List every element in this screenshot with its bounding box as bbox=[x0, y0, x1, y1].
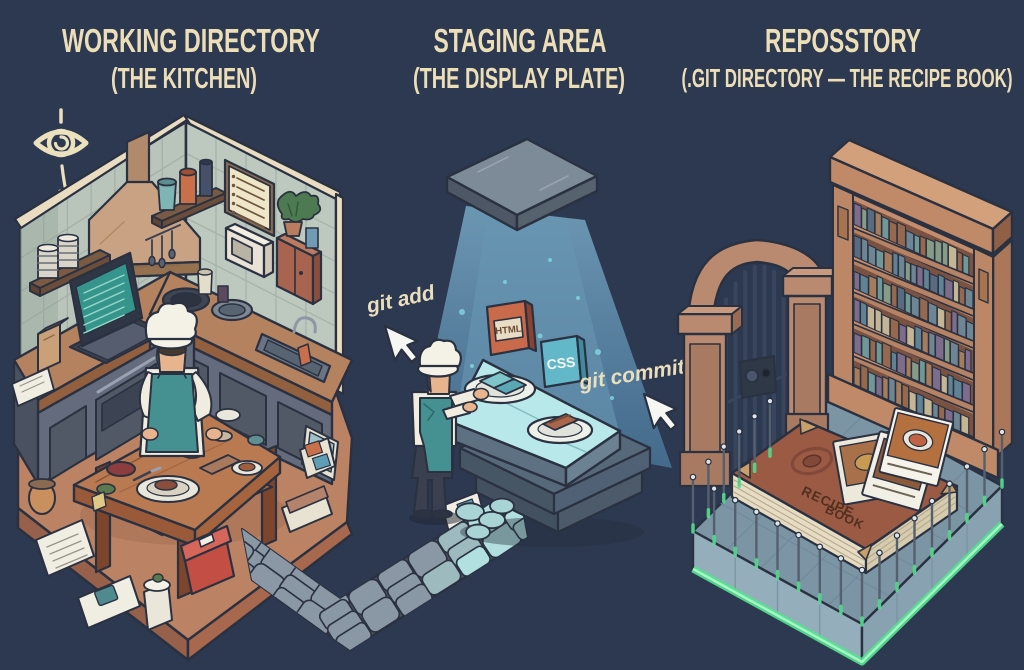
svg-text:REPOSSTORY: REPOSSTORY bbox=[765, 22, 921, 59]
svg-text:(THE DISPLAY PLATE): (THE DISPLAY PLATE) bbox=[413, 63, 625, 95]
svg-text:(THE KITCHEN): (THE KITCHEN) bbox=[111, 63, 257, 95]
svg-text:STAGING AREA: STAGING AREA bbox=[434, 22, 607, 59]
svg-text:(.GIT DIRECTORY — THE RECIPE B: (.GIT DIRECTORY — THE RECIPE BOOK) bbox=[682, 63, 1013, 93]
svg-text:CSS: CSS bbox=[546, 354, 576, 373]
svg-text:WORKING DIRECTORY: WORKING DIRECTORY bbox=[62, 22, 320, 59]
